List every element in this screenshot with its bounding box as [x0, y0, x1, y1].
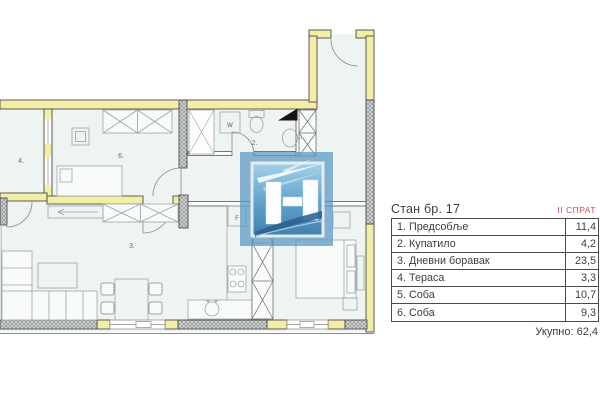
area-table: 1. Предсобље 11,4 2. Купатило 4,2 3. Дне…: [391, 218, 599, 322]
info-panel: Стан бр. 17 II СПРАТ 1. Предсобље 11,4 2…: [391, 197, 599, 338]
room-area: 23,5: [565, 253, 598, 269]
table-row: 5. Соба 10,7: [392, 286, 598, 303]
label-living: 3.: [129, 243, 135, 250]
kitchen-counter: [188, 300, 252, 319]
room-area: 10,7: [565, 287, 598, 303]
table-row: 2. Купатило 4,2: [392, 235, 598, 252]
stove: [228, 266, 246, 292]
table-row: 4. Тераса 3,3: [392, 269, 598, 286]
room-name: 2. Купатило: [392, 238, 565, 250]
room-area: 3,3: [565, 270, 598, 286]
bed-bedroom6: [57, 166, 122, 196]
floor-plan-page: 4. 6. 2. 3. W F Стан бр. 17 II С: [0, 0, 600, 400]
room-area: 4,2: [565, 236, 598, 252]
table-row: 6. Соба 9,3: [392, 303, 598, 320]
label-terrace: 4.: [18, 158, 24, 165]
room-area: 11,4: [565, 219, 598, 235]
label-fridge: F: [235, 216, 239, 222]
panel-header: Стан бр. 17 II СПРАТ: [391, 197, 599, 216]
label-bedroom6: 6.: [118, 153, 124, 160]
wardrobe-living: [103, 204, 178, 222]
room-name: 6. Соба: [392, 307, 565, 319]
apartment-title: Стан бр. 17: [391, 202, 460, 216]
total-area: Укупно: 62,4: [391, 326, 599, 338]
developer-logo-watermark: [240, 152, 333, 246]
label-bathroom: 2.: [252, 140, 258, 147]
bed-bedroom5: [296, 240, 356, 298]
shower: [189, 110, 214, 154]
room-name: 4. Тераса: [392, 272, 565, 284]
room-name: 3. Дневни боравак: [392, 255, 565, 267]
room-name: 5. Соба: [392, 289, 565, 301]
wardrobe-bedroom6: [103, 110, 172, 133]
label-washer: W: [227, 123, 233, 129]
room-name: 1. Предсобље: [392, 221, 565, 233]
floor-badge: II СПРАТ: [557, 205, 599, 216]
table-row: 1. Предсобље 11,4: [392, 219, 598, 235]
wardrobe-hall: [299, 110, 316, 156]
room-area: 9,3: [565, 304, 598, 320]
table-row: 3. Дневни боравак 23,5: [392, 252, 598, 269]
